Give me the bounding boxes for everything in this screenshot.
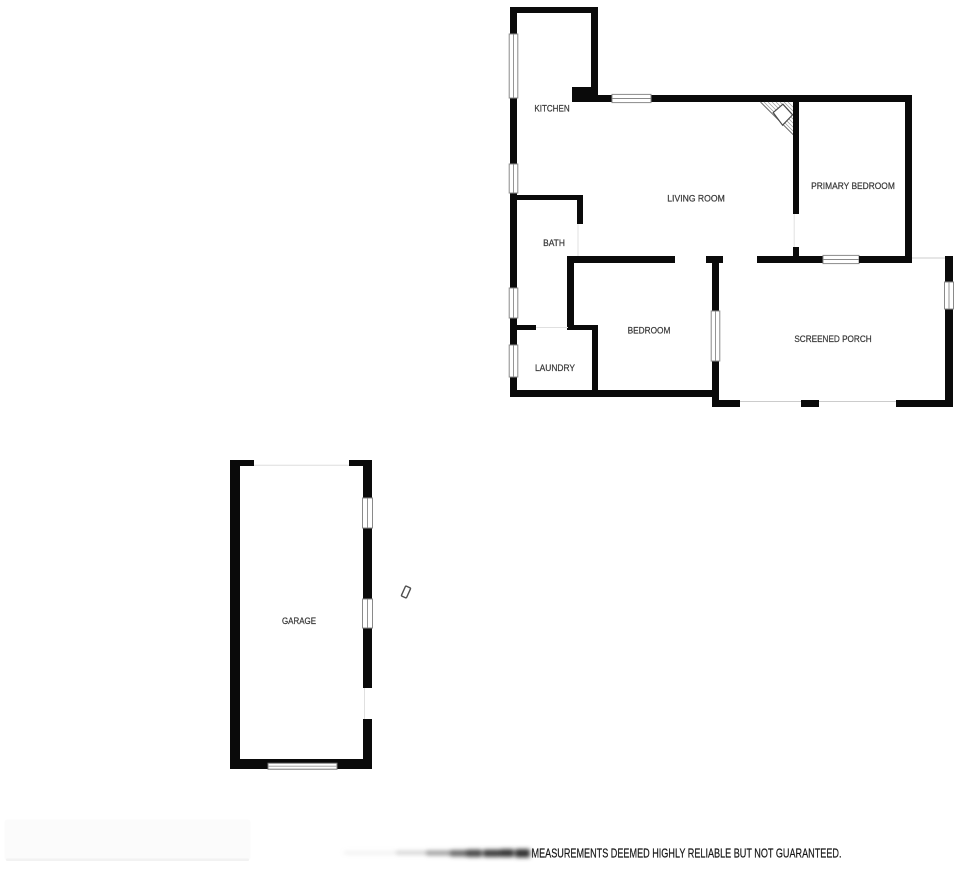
svg-text:LIVING ROOM: LIVING ROOM <box>667 193 725 204</box>
svg-text:MEASUREMENTS DEEMED HIGHLY REL: MEASUREMENTS DEEMED HIGHLY RELIABLE BUT … <box>532 846 842 860</box>
svg-text:PRIMARY BEDROOM: PRIMARY BEDROOM <box>811 181 895 192</box>
svg-text:KITCHEN: KITCHEN <box>534 104 569 115</box>
svg-text:SCREENED PORCH: SCREENED PORCH <box>794 334 871 345</box>
svg-text:BEDROOM: BEDROOM <box>628 326 671 337</box>
svg-text:LAUNDRY: LAUNDRY <box>535 363 576 374</box>
svg-text:GARAGE: GARAGE <box>282 616 316 627</box>
svg-text:BATH: BATH <box>543 238 565 249</box>
